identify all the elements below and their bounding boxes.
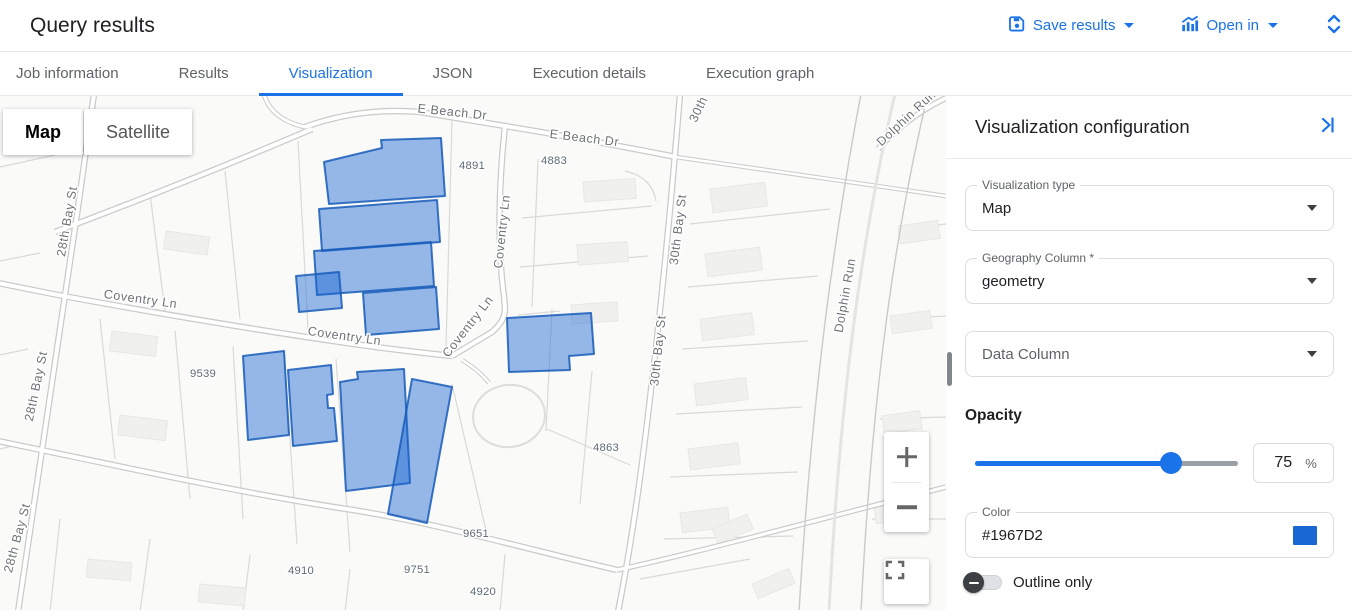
color-swatch[interactable] bbox=[1293, 526, 1317, 545]
page-title: Query results bbox=[30, 14, 155, 38]
panel-title: Visualization configuration bbox=[975, 116, 1190, 138]
tab-execution-details[interactable]: Execution details bbox=[503, 52, 676, 95]
map-canvas[interactable]: E Beach Dr E Beach Dr Coventry Ln Covent… bbox=[0, 96, 946, 610]
open-in-caret-icon bbox=[1268, 23, 1278, 28]
outline-only-row: Outline only bbox=[965, 574, 1334, 591]
house-number: 4920 bbox=[470, 586, 496, 598]
opacity-label: Opacity bbox=[965, 407, 1334, 425]
house-number: 4883 bbox=[541, 155, 567, 167]
save-results-label: Save results bbox=[1033, 17, 1116, 34]
opacity-value-input[interactable] bbox=[1270, 454, 1296, 472]
panel-body: Visualization type Map Geography Column … bbox=[946, 159, 1352, 591]
open-in-label: Open in bbox=[1206, 17, 1259, 34]
visualization-type-value: Map bbox=[982, 200, 1011, 217]
color-label: Color bbox=[977, 505, 1016, 519]
map-view-button[interactable]: Map bbox=[3, 109, 83, 155]
visualization-configuration-panel: Visualization configuration Visualizatio… bbox=[946, 96, 1352, 610]
map-zoom-control bbox=[884, 432, 929, 532]
save-icon bbox=[1008, 15, 1026, 37]
geography-column-label: Geography Column * bbox=[977, 251, 1099, 265]
tab-results[interactable]: Results bbox=[149, 52, 259, 95]
color-field[interactable]: Color bbox=[965, 512, 1334, 558]
expand-results-button[interactable] bbox=[1324, 13, 1344, 39]
zoom-in-button[interactable] bbox=[884, 432, 929, 482]
color-input[interactable] bbox=[982, 527, 1132, 544]
plus-icon bbox=[905, 447, 909, 467]
chart-icon bbox=[1180, 15, 1199, 37]
house-number: 4910 bbox=[288, 565, 314, 577]
opacity-slider[interactable] bbox=[975, 452, 1238, 474]
open-in-button[interactable]: Open in bbox=[1180, 15, 1278, 37]
tab-json[interactable]: JSON bbox=[403, 52, 503, 95]
minus-icon bbox=[897, 506, 917, 510]
map-svg: E Beach Dr E Beach Dr Coventry Ln Covent… bbox=[0, 96, 946, 610]
header-actions: Save results Open in bbox=[1008, 13, 1344, 39]
opacity-control: % bbox=[965, 443, 1334, 483]
outline-only-label: Outline only bbox=[1013, 574, 1092, 591]
geography-column-select[interactable]: Geography Column * geometry bbox=[965, 258, 1334, 304]
results-tab-bar: Job information Results Visualization JS… bbox=[0, 52, 1352, 96]
fullscreen-icon bbox=[884, 559, 906, 581]
data-column-select[interactable]: Data Column bbox=[965, 331, 1334, 377]
panel-scrollbar[interactable] bbox=[947, 352, 952, 386]
tab-job-information[interactable]: Job information bbox=[0, 52, 149, 95]
toggle-off-minus-icon bbox=[969, 582, 979, 584]
slider-fill bbox=[975, 461, 1171, 466]
zoom-out-button[interactable] bbox=[884, 483, 929, 533]
opacity-value-box: % bbox=[1253, 443, 1334, 483]
house-number: 9651 bbox=[463, 528, 489, 540]
header: Query results Save results bbox=[0, 0, 1352, 52]
save-results-caret-icon bbox=[1124, 23, 1134, 28]
panel-header: Visualization configuration bbox=[946, 96, 1352, 159]
geography-column-value: geometry bbox=[982, 273, 1045, 290]
collapse-panel-icon bbox=[1316, 114, 1338, 136]
dropdown-caret-icon bbox=[1307, 205, 1317, 211]
tab-execution-graph[interactable]: Execution graph bbox=[676, 52, 844, 95]
opacity-unit: % bbox=[1305, 456, 1317, 471]
house-number: 4863 bbox=[593, 442, 619, 454]
outline-only-toggle[interactable] bbox=[965, 575, 1002, 590]
fullscreen-button[interactable] bbox=[884, 559, 929, 604]
opacity-slider-thumb[interactable] bbox=[1160, 452, 1182, 474]
dropdown-caret-icon bbox=[1307, 351, 1317, 357]
house-number: 9751 bbox=[404, 564, 430, 576]
map-type-control: Map Satellite bbox=[3, 109, 192, 155]
house-number: 9539 bbox=[190, 368, 216, 380]
unfold-chevrons-icon bbox=[1324, 13, 1344, 39]
house-number: 4891 bbox=[459, 160, 485, 172]
tab-visualization[interactable]: Visualization bbox=[259, 52, 403, 95]
data-column-placeholder: Data Column bbox=[982, 346, 1070, 363]
collapse-panel-button[interactable] bbox=[1316, 114, 1338, 141]
toggle-thumb bbox=[963, 572, 984, 593]
visualization-type-select[interactable]: Visualization type Map bbox=[965, 185, 1334, 231]
dropdown-caret-icon bbox=[1307, 278, 1317, 284]
visualization-type-label: Visualization type bbox=[977, 178, 1080, 192]
save-results-button[interactable]: Save results bbox=[1008, 15, 1135, 37]
satellite-view-button[interactable]: Satellite bbox=[84, 109, 192, 155]
